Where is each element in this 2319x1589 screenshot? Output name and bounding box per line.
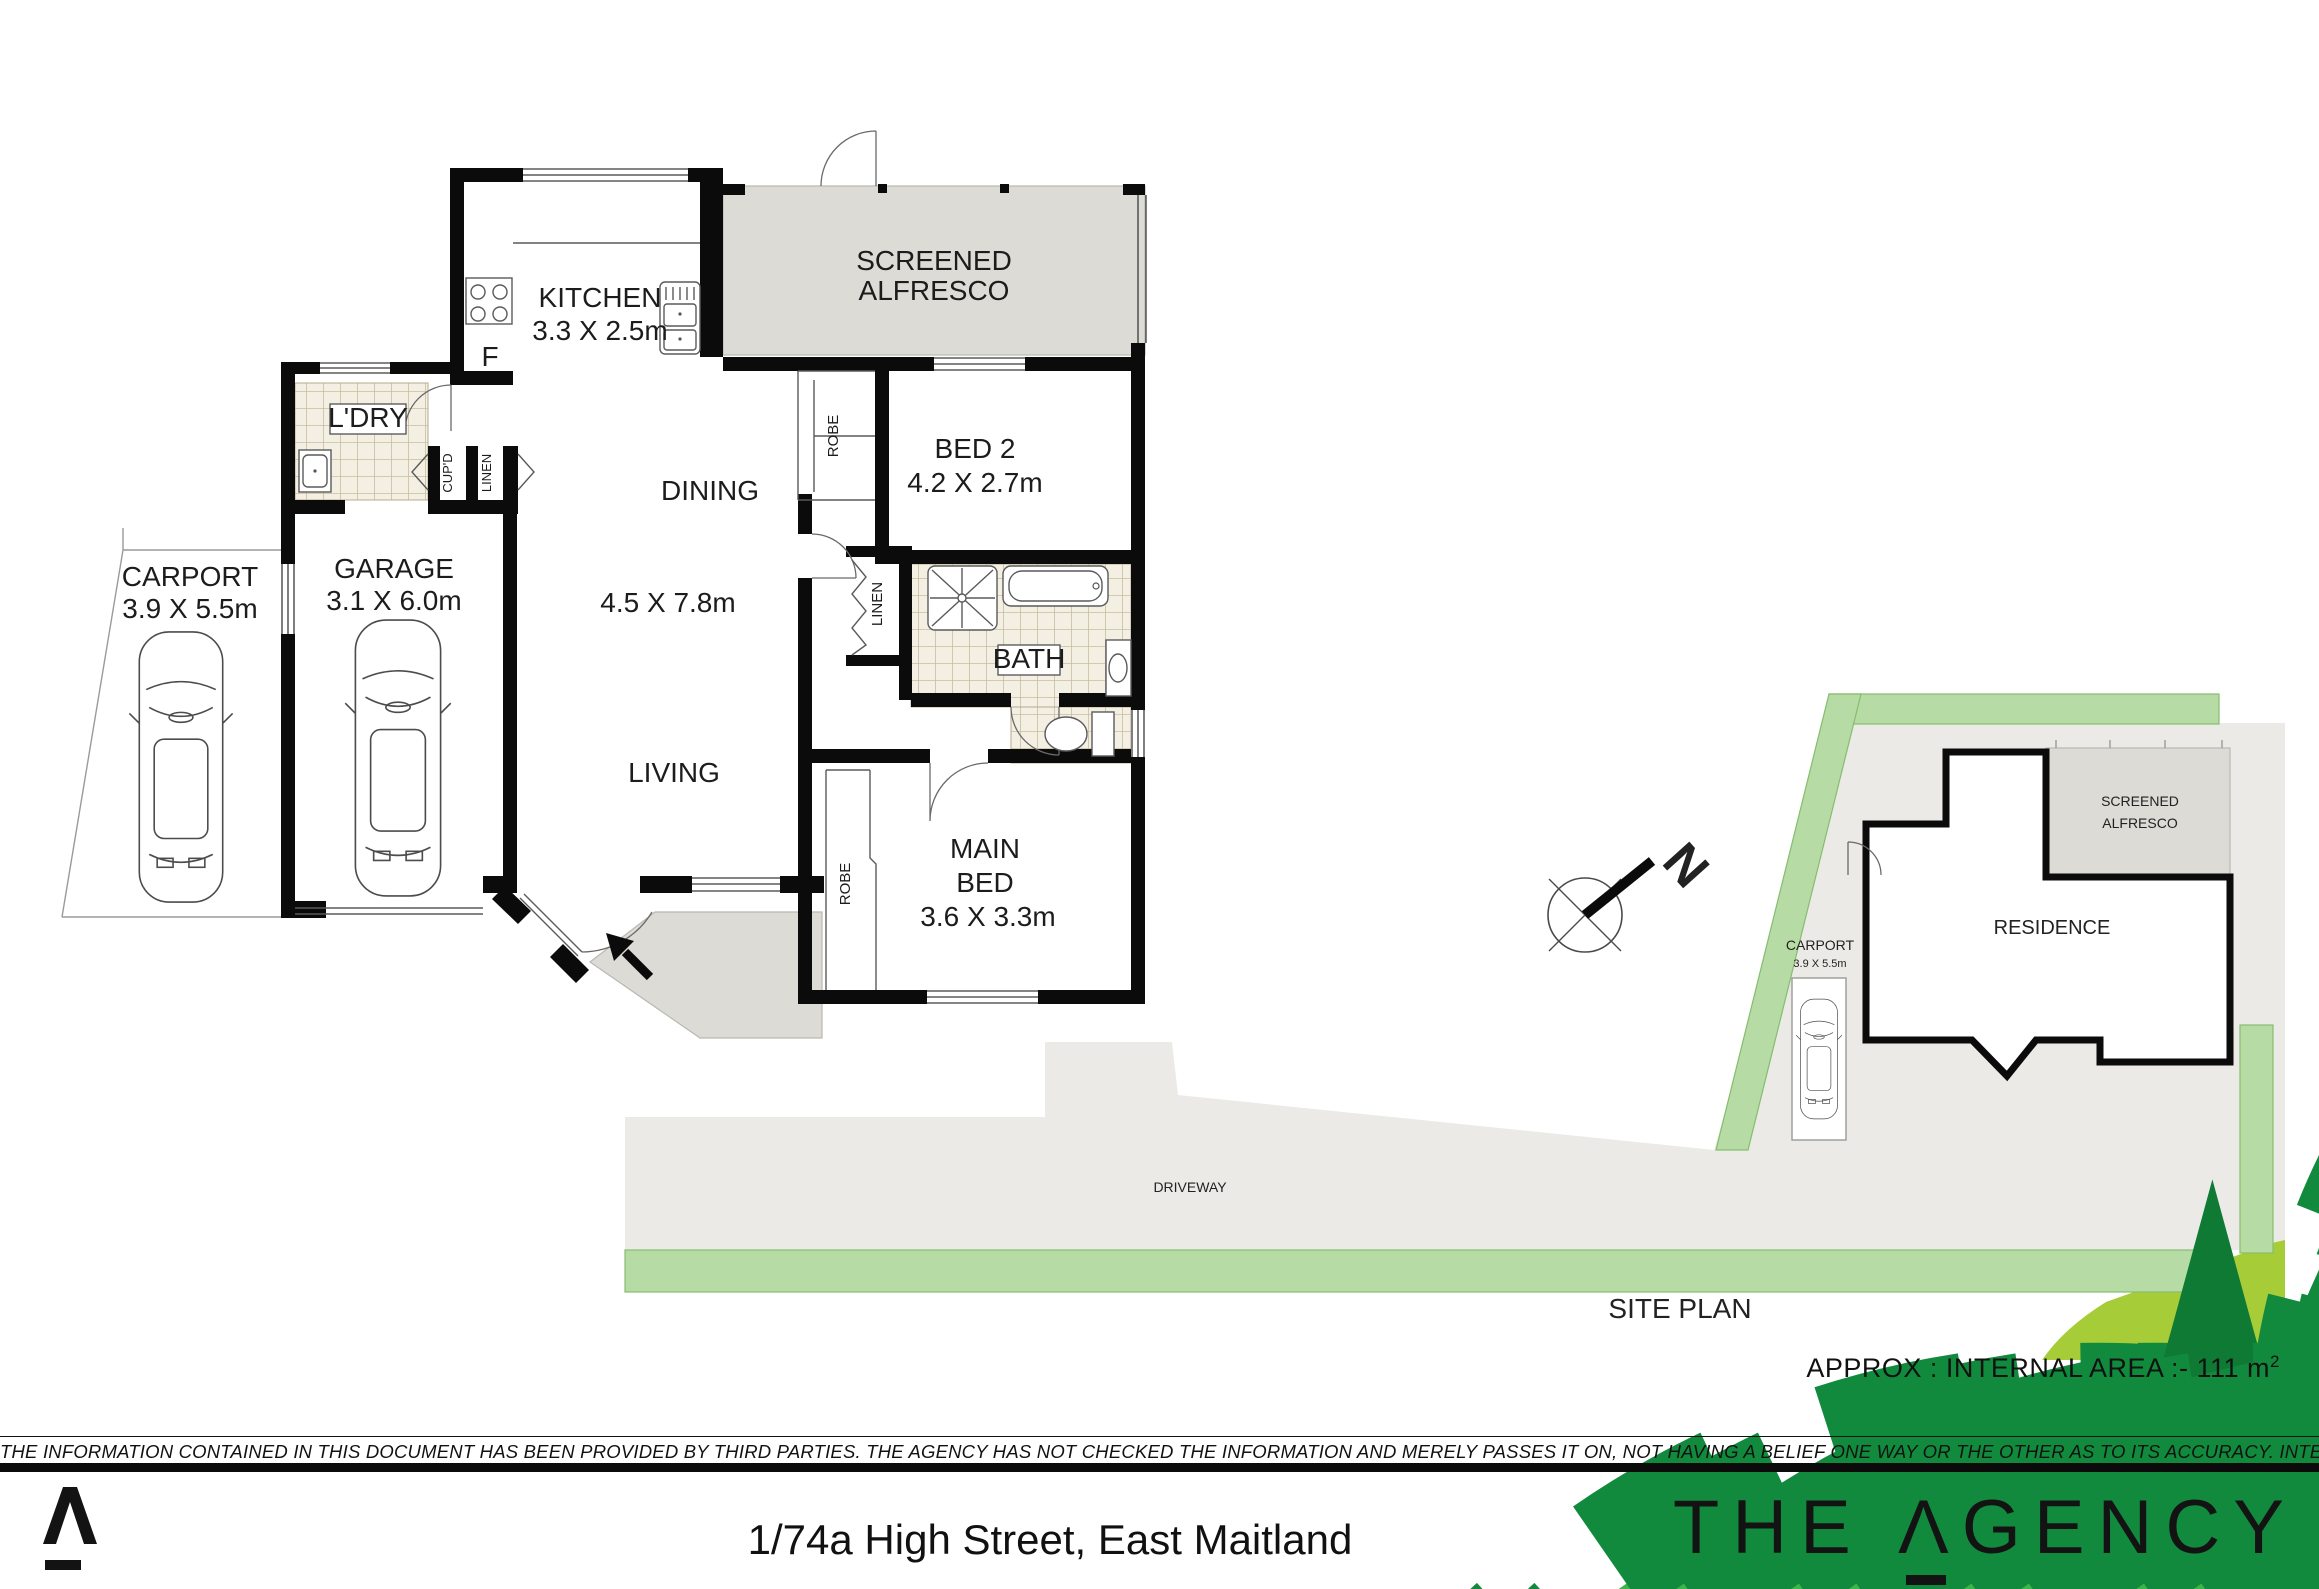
mainbed-label-2: BED bbox=[956, 867, 1014, 898]
site-carport-label: CARPORT bbox=[1786, 937, 1855, 953]
tree-strip-bottom bbox=[625, 1250, 2230, 1292]
fridge-label: F bbox=[481, 341, 498, 372]
brand-lambda: Λ bbox=[1898, 1484, 1962, 1571]
bath-label-box: BATH bbox=[993, 643, 1066, 675]
shower-icon bbox=[928, 566, 997, 630]
robe-bed2-label: ROBE bbox=[825, 415, 842, 458]
vanity-icon bbox=[1106, 640, 1131, 696]
site-plan-title: SITE PLAN bbox=[1608, 1293, 1751, 1324]
robe-main-label: ROBE bbox=[837, 863, 854, 906]
brand-wordmark: THE ΛGENCY bbox=[1673, 1484, 2297, 1571]
plan-drawing: N RESIDENCE SCREENED ALFRESCO CARPORT 3.… bbox=[0, 0, 2319, 1589]
car-icon bbox=[1796, 999, 1842, 1119]
agency-logo-icon bbox=[40, 1482, 110, 1577]
linen-hall-label: LINEN bbox=[869, 582, 886, 626]
bathtub-icon bbox=[1003, 566, 1108, 606]
tree-strip-right bbox=[2240, 1025, 2273, 1253]
site-carport-dims: 3.9 X 5.5m bbox=[1793, 958, 1846, 970]
stove-icon bbox=[466, 278, 512, 324]
garage-dims: 3.1 X 6.0m bbox=[326, 585, 461, 616]
car-icon-garage bbox=[345, 620, 450, 896]
brand-the: THE bbox=[1673, 1485, 1864, 1570]
cupboard-label: CUP'D bbox=[440, 453, 455, 492]
site-alfresco-label-2: ALFRESCO bbox=[2102, 815, 2178, 831]
mainbed-label-1: MAIN bbox=[950, 833, 1020, 864]
carport-label: CARPORT bbox=[122, 561, 258, 592]
property-address: 1/74a High Street, East Maitland bbox=[690, 1516, 1410, 1564]
dining-dims: 4.5 X 7.8m bbox=[600, 587, 735, 618]
floor-plan: KITCHEN 3.3 X 2.5m SCREENED ALFRESCO DIN… bbox=[62, 131, 1146, 1038]
brand-rest: GENCY bbox=[1962, 1485, 2297, 1570]
dining-label: DINING bbox=[661, 475, 759, 506]
driveway-label: DRIVEWAY bbox=[1153, 1179, 1227, 1195]
kitchen-label: KITCHEN bbox=[539, 282, 662, 313]
bed2-dims: 4.2 X 2.7m bbox=[907, 467, 1042, 498]
laundry-label-box: L'DRY bbox=[328, 402, 408, 434]
site-carport bbox=[1792, 978, 1846, 1140]
linen-small-label: LINEN bbox=[479, 454, 494, 492]
mainbed-dims: 3.6 X 3.3m bbox=[920, 901, 1055, 932]
living-label: LIVING bbox=[628, 757, 720, 788]
north-label: N bbox=[1652, 832, 1720, 899]
carport-dims: 3.9 X 5.5m bbox=[122, 593, 257, 624]
residence-label: RESIDENCE bbox=[1994, 917, 2111, 939]
bed2-label: BED 2 bbox=[935, 433, 1016, 464]
divider-rule bbox=[0, 1463, 2319, 1472]
laundry-tub-icon bbox=[299, 450, 331, 492]
compass-icon: N bbox=[1548, 832, 1720, 952]
bath-label: BATH bbox=[993, 643, 1066, 674]
tree-strip-top bbox=[1829, 694, 2219, 724]
laundry-label: L'DRY bbox=[328, 402, 408, 433]
alfresco-label-2: ALFRESCO bbox=[859, 275, 1010, 306]
site-alfresco-area bbox=[2046, 748, 2230, 880]
site-alfresco-label-1: SCREENED bbox=[2101, 793, 2179, 809]
area-superscript: 2 bbox=[2270, 1352, 2280, 1371]
kitchen-dims: 3.3 X 2.5m bbox=[532, 315, 667, 346]
internal-area-note: APPROX : INTERNAL AREA :- 111 m2 bbox=[1806, 1352, 2280, 1384]
garage-label: GARAGE bbox=[334, 553, 454, 584]
north-arrow bbox=[1585, 861, 1652, 915]
floorplan-page: N RESIDENCE SCREENED ALFRESCO CARPORT 3.… bbox=[0, 0, 2319, 1589]
alfresco-label-1: SCREENED bbox=[856, 245, 1012, 276]
disclaimer-text: THE INFORMATION CONTAINED IN THIS DOCUME… bbox=[0, 1436, 2319, 1463]
car-icon-carport bbox=[129, 632, 232, 902]
